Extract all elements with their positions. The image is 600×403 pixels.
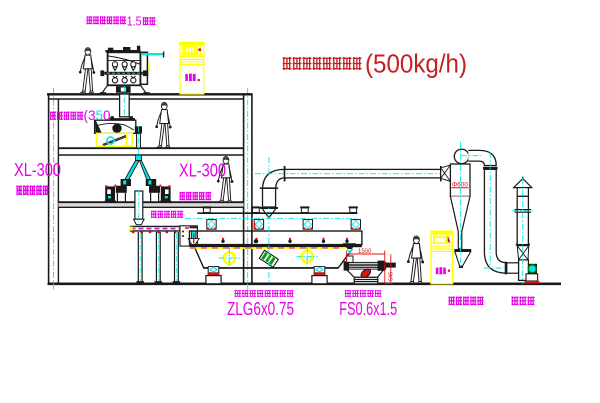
svg-text:FS0.6x1.5: FS0.6x1.5: [339, 299, 397, 319]
svg-text:1500: 1500: [358, 249, 372, 255]
svg-text:ZLG6x0.75: ZLG6x0.75: [227, 299, 294, 319]
svg-text:XL-300: XL-300: [14, 160, 61, 180]
svg-text:545: 545: [389, 272, 395, 281]
svg-text:XL-300: XL-300: [179, 161, 226, 181]
svg-text:1.5: 1.5: [127, 14, 142, 29]
svg-text:(350: (350: [84, 108, 111, 123]
svg-text:(500kg/h): (500kg/h): [365, 51, 467, 79]
